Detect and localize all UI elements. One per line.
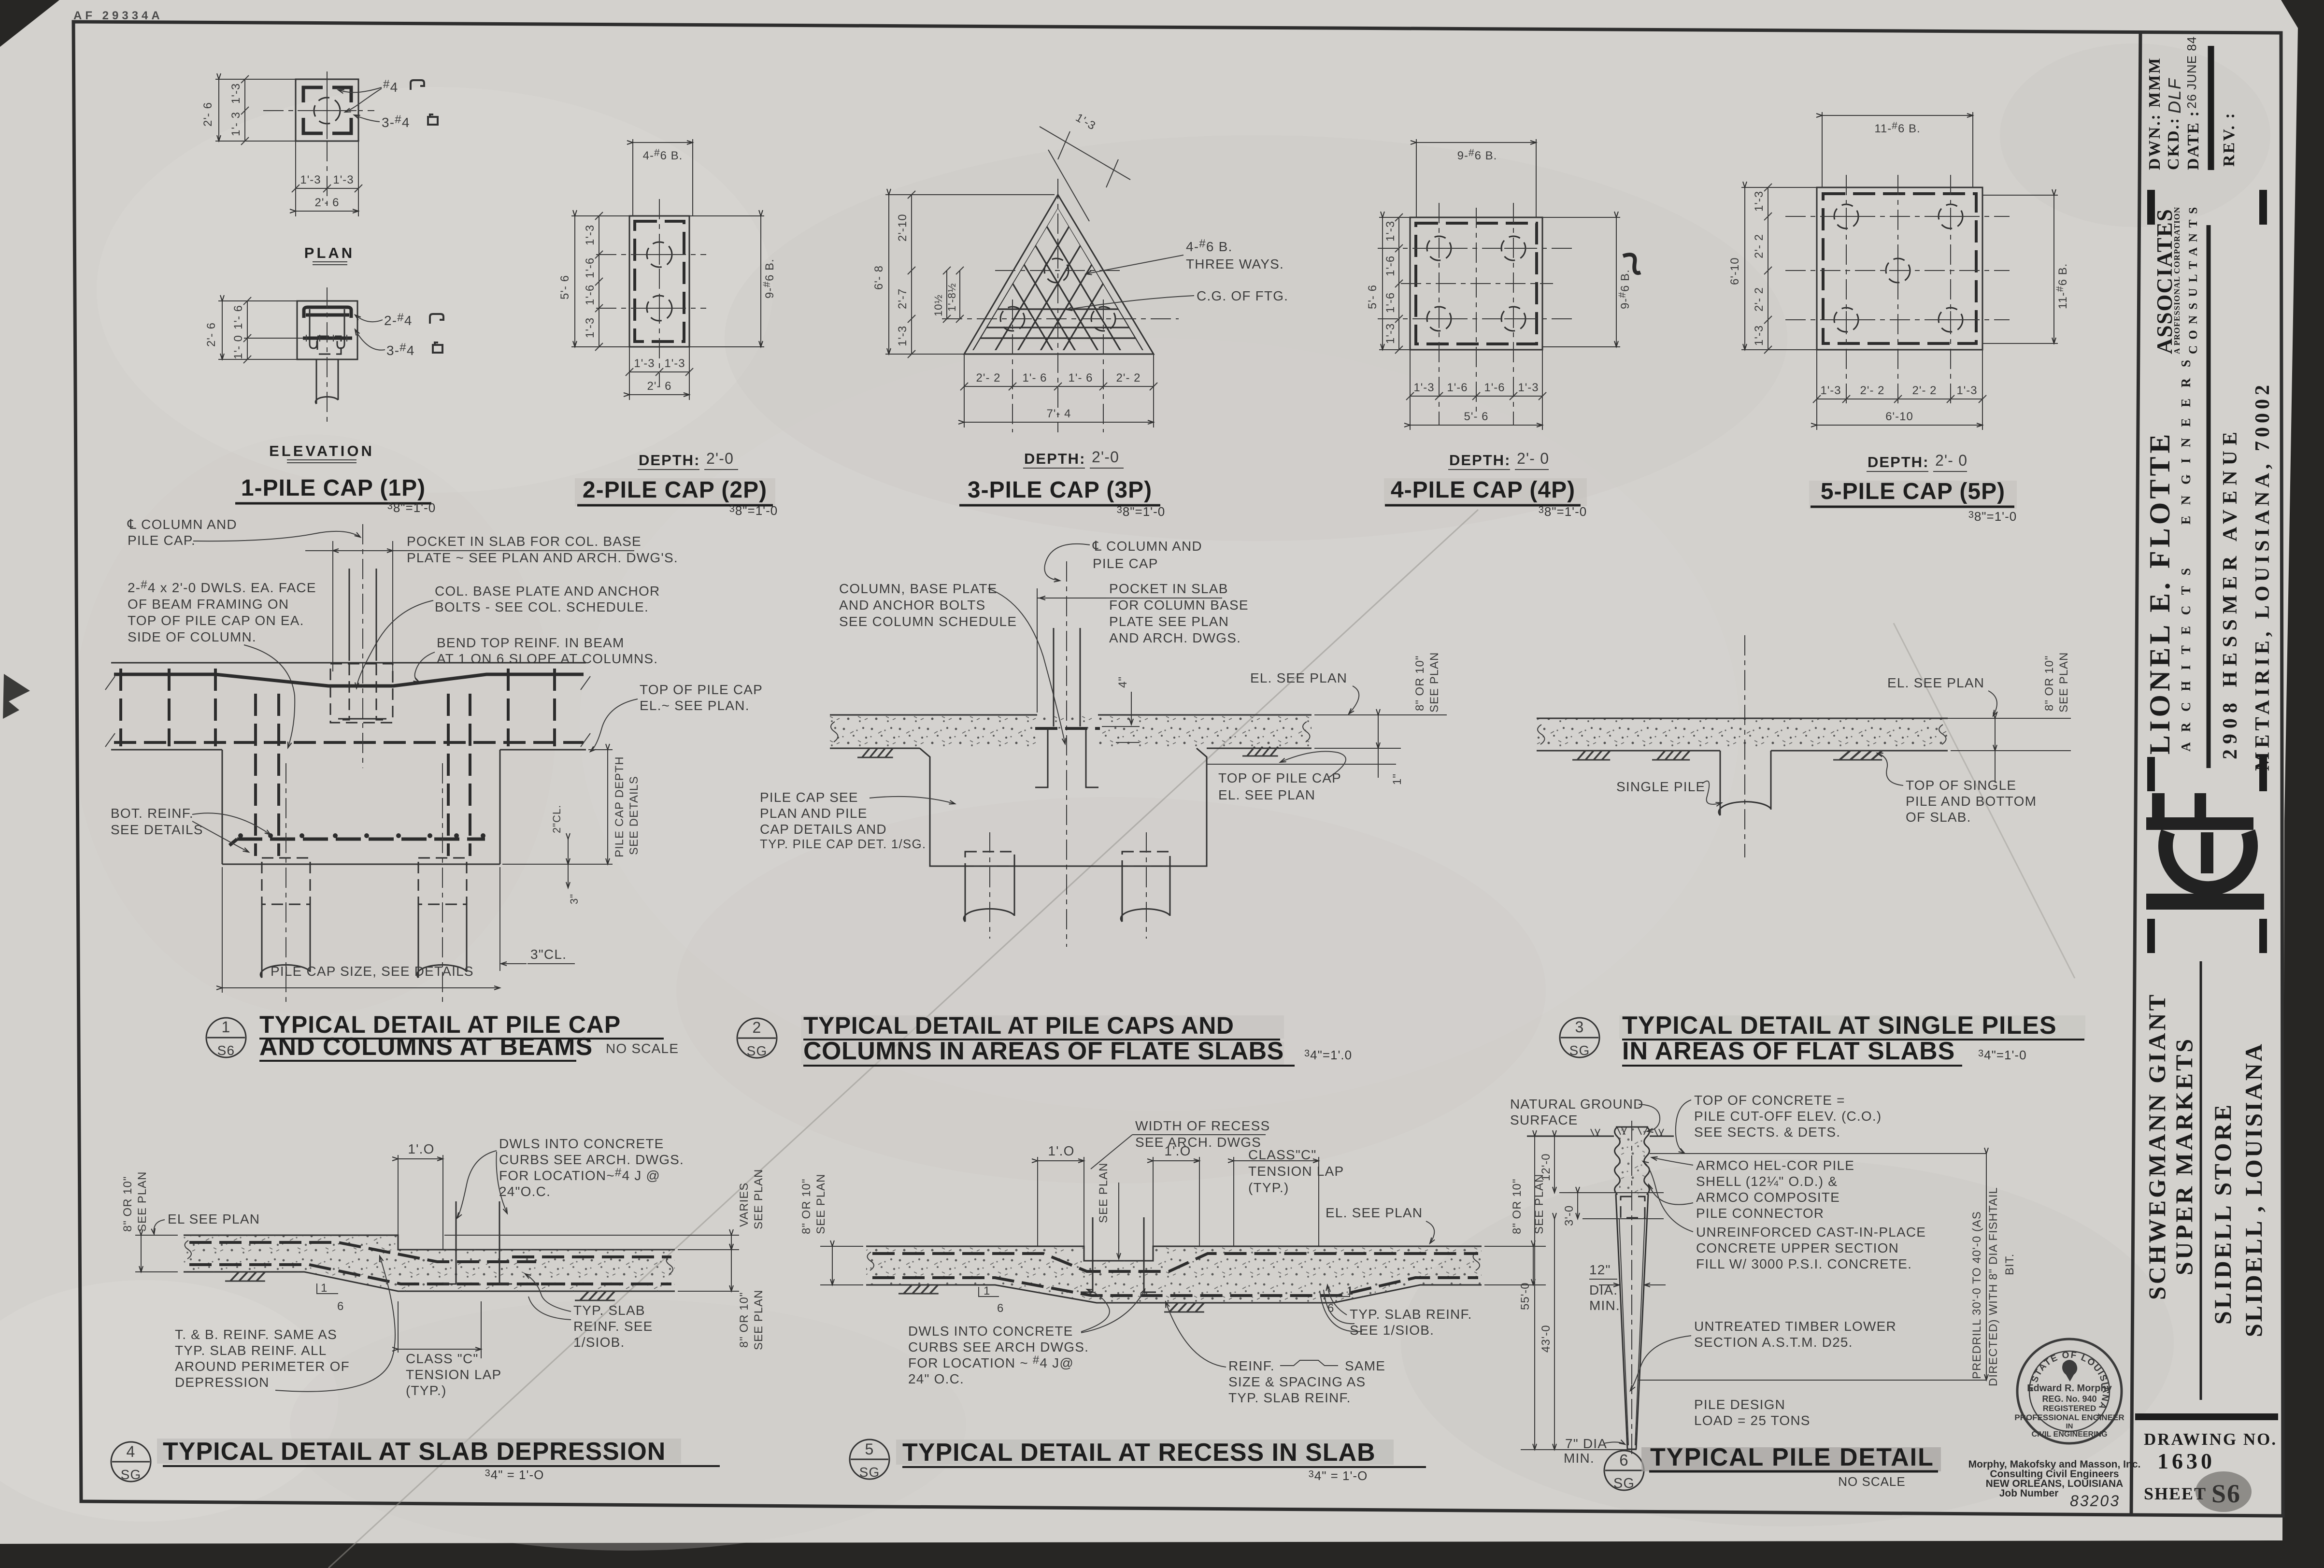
svg-text:2'- 6: 2'- 6 bbox=[205, 322, 218, 347]
svg-text:OF SLAB.: OF SLAB. bbox=[1906, 810, 1971, 825]
svg-text:REINF.: REINF. bbox=[1228, 1358, 1275, 1373]
svg-text:1: 1 bbox=[321, 1282, 328, 1295]
svg-text:1630: 1630 bbox=[2157, 1449, 2215, 1473]
svg-text:8" OR 10": 8" OR 10" bbox=[1413, 656, 1426, 711]
svg-text:AND COLUMNS AT BEAMS: AND COLUMNS AT BEAMS bbox=[259, 1033, 593, 1061]
svg-text:8" OR 10": 8" OR 10" bbox=[800, 1179, 813, 1234]
svg-text:3: 3 bbox=[1575, 1018, 1584, 1036]
svg-text:SUPER MARKETS: SUPER MARKETS bbox=[2170, 1037, 2197, 1275]
svg-text:SG: SG bbox=[747, 1043, 768, 1058]
svg-text:3-PILE CAP (3P): 3-PILE CAP (3P) bbox=[968, 477, 1152, 503]
svg-text:(TYP.): (TYP.) bbox=[406, 1383, 446, 1398]
svg-text:1'-3: 1'-3 bbox=[1413, 381, 1434, 394]
svg-text:2'- 2: 2'- 2 bbox=[1116, 371, 1141, 385]
svg-text:38"=1'-0: 38"=1'-0 bbox=[1968, 509, 2017, 524]
svg-text:8" OR 10": 8" OR 10" bbox=[121, 1176, 134, 1232]
svg-text:1: 1 bbox=[1347, 1284, 1354, 1297]
svg-text:DWN.: MMM: DWN.: MMM bbox=[2146, 57, 2164, 170]
svg-text:1'.O: 1'.O bbox=[408, 1141, 434, 1156]
svg-text:1'- 3: 1'- 3 bbox=[229, 112, 242, 136]
svg-text:TOP OF PILE CAP: TOP OF PILE CAP bbox=[1218, 770, 1341, 785]
svg-text:43'-0: 43'-0 bbox=[1540, 1325, 1553, 1353]
svg-text:38"=1'-0: 38"=1'-0 bbox=[729, 503, 778, 518]
svg-text:9-#6 B.: 9-#6 B. bbox=[1457, 147, 1497, 162]
svg-text:26 JUNE 84: 26 JUNE 84 bbox=[2184, 36, 2199, 109]
svg-text:PLATE SEE PLAN: PLATE SEE PLAN bbox=[1109, 614, 1229, 629]
svg-text:83203: 83203 bbox=[2070, 1492, 2120, 1510]
svg-text:SHELL (12¼" O.D.) &: SHELL (12¼" O.D.) & bbox=[1696, 1174, 1838, 1189]
svg-text:FILL W/ 3000 P.S.I. CONCRETE.: FILL W/ 3000 P.S.I. CONCRETE. bbox=[1696, 1256, 1912, 1271]
svg-text:IN: IN bbox=[2066, 1422, 2073, 1430]
svg-text:DIRECTED) WITH 8" DIA FISHTAI: DIRECTED) WITH 8" DIA FISHTAIL bbox=[1987, 1187, 2000, 1386]
svg-text:6: 6 bbox=[997, 1302, 1004, 1315]
svg-text:6'-10: 6'-10 bbox=[1728, 257, 1741, 285]
svg-text:TYPICAL DETAIL AT PILE CAPS AN: TYPICAL DETAIL AT PILE CAPS AND bbox=[803, 1012, 1234, 1039]
svg-text:1'-3: 1'-3 bbox=[1753, 325, 1766, 346]
svg-text:3'-0: 3'-0 bbox=[1563, 1205, 1576, 1226]
svg-text:TOP OF CONCRETE =: TOP OF CONCRETE = bbox=[1694, 1093, 1845, 1108]
svg-text:AT 1 ON 6 SLOPE AT COLUMNS.: AT 1 ON 6 SLOPE AT COLUMNS. bbox=[437, 651, 658, 666]
svg-text:BOLTS - SEE COL. SCHEDULE.: BOLTS - SEE COL. SCHEDULE. bbox=[435, 599, 649, 614]
svg-text:34"=1'.0: 34"=1'.0 bbox=[1304, 1048, 1352, 1062]
svg-text:EL. SEE PLAN: EL. SEE PLAN bbox=[1326, 1205, 1423, 1220]
svg-text:Job Number: Job Number bbox=[1999, 1488, 2059, 1499]
svg-text:2'- 2: 2'- 2 bbox=[1753, 234, 1766, 258]
svg-text:SEE 1/SIOB.: SEE 1/SIOB. bbox=[1350, 1323, 1434, 1338]
svg-text:BOT. REINF.: BOT. REINF. bbox=[111, 806, 194, 821]
svg-text:SCHWEGMANN GIANT: SCHWEGMANN GIANT bbox=[2143, 992, 2170, 1300]
svg-text:EL. SEE PLAN: EL. SEE PLAN bbox=[1250, 670, 1347, 685]
svg-text:DEPTH:: DEPTH: bbox=[1024, 450, 1085, 467]
svg-text:LIONEL E. FLOTTE: LIONEL E. FLOTTE bbox=[2144, 430, 2176, 755]
svg-text:2'-10: 2'-10 bbox=[896, 214, 909, 242]
svg-text:VARIES: VARIES bbox=[738, 1183, 751, 1227]
svg-text:1'-3: 1'-3 bbox=[1384, 221, 1397, 242]
svg-text:BIT.: BIT. bbox=[2003, 1254, 2016, 1275]
svg-text:EL. SEE PLAN: EL. SEE PLAN bbox=[1218, 787, 1315, 802]
svg-text:PILE CONNECTOR: PILE CONNECTOR bbox=[1696, 1206, 1824, 1221]
svg-text:SINGLE PILE: SINGLE PILE bbox=[1616, 779, 1705, 794]
svg-text:COLUMNS IN AREAS OF FLATE SLAB: COLUMNS IN AREAS OF FLATE SLABS bbox=[803, 1037, 1284, 1065]
svg-text:WIDTH OF RECESS: WIDTH OF RECESS bbox=[1135, 1118, 1270, 1133]
svg-text:NATURAL GROUND: NATURAL GROUND bbox=[1510, 1097, 1644, 1112]
svg-text:SEE DETAILS: SEE DETAILS bbox=[627, 776, 641, 855]
svg-text:POCKET IN SLAB: POCKET IN SLAB bbox=[1109, 581, 1228, 596]
svg-text:1'-6: 1'-6 bbox=[584, 285, 597, 305]
svg-text:SEE PLAN: SEE PLAN bbox=[136, 1171, 149, 1232]
svg-text:2: 2 bbox=[753, 1019, 762, 1036]
svg-text:PLAN: PLAN bbox=[304, 244, 355, 261]
svg-text:2"CL.: 2"CL. bbox=[551, 805, 563, 833]
svg-text:1'-6: 1'-6 bbox=[1447, 381, 1468, 394]
svg-text:PROFESSIONAL ENGINEER: PROFESSIONAL ENGINEER bbox=[2014, 1413, 2124, 1422]
svg-text:1'-6: 1'-6 bbox=[584, 257, 597, 278]
svg-text:MIN.: MIN. bbox=[1564, 1451, 1595, 1466]
svg-text:SLIDELL , LOUISIANA: SLIDELL , LOUISIANA bbox=[2240, 1042, 2267, 1337]
svg-text:DEPTH:: DEPTH: bbox=[639, 452, 700, 469]
svg-text:1'-6: 1'-6 bbox=[1384, 256, 1397, 276]
svg-text:2'- 0: 2'- 0 bbox=[1935, 452, 1968, 469]
svg-text:1'-3: 1'-3 bbox=[1384, 323, 1397, 344]
svg-text:6'- 8: 6'- 8 bbox=[872, 265, 885, 290]
svg-text:7'- 4: 7'- 4 bbox=[1047, 407, 1071, 420]
svg-text:PILE DESIGN: PILE DESIGN bbox=[1694, 1397, 1785, 1412]
svg-text:SEE ARCH. DWGS: SEE ARCH. DWGS bbox=[1135, 1135, 1261, 1150]
svg-text:1'-3: 1'-3 bbox=[1753, 191, 1766, 212]
svg-text:2-#4 x 2'-0 DWLS. EA. FACE: 2-#4 x 2'-0 DWLS. EA. FACE bbox=[128, 578, 316, 595]
svg-text:NO SCALE: NO SCALE bbox=[1838, 1474, 1906, 1489]
svg-text:1'-8½: 1'-8½ bbox=[946, 283, 958, 312]
svg-text:DWLS INTO CONCRETE: DWLS INTO CONCRETE bbox=[908, 1324, 1073, 1339]
svg-text:TYP. SLAB REINF.: TYP. SLAB REINF. bbox=[1350, 1307, 1472, 1322]
svg-text:6: 6 bbox=[337, 1300, 344, 1313]
svg-text:5-PILE CAP (5P): 5-PILE CAP (5P) bbox=[1821, 479, 2005, 504]
svg-text:REG. No. 940: REG. No. 940 bbox=[2042, 1394, 2096, 1404]
svg-text:8" OR 10": 8" OR 10" bbox=[738, 1292, 751, 1348]
svg-text:OF BEAM FRAMING ON: OF BEAM FRAMING ON bbox=[128, 597, 289, 612]
svg-text:TYP. SLAB: TYP. SLAB bbox=[573, 1303, 645, 1318]
svg-text:1'- 6: 1'- 6 bbox=[232, 305, 245, 329]
svg-text:3": 3" bbox=[568, 894, 580, 904]
svg-text:AND ANCHOR BOLTS: AND ANCHOR BOLTS bbox=[839, 598, 985, 613]
svg-text:DEPRESSION: DEPRESSION bbox=[175, 1375, 270, 1390]
svg-text:TOP OF PILE CAP ON EA.: TOP OF PILE CAP ON EA. bbox=[128, 613, 304, 628]
svg-text:SG: SG bbox=[859, 1465, 880, 1480]
svg-text:CLASS "C": CLASS "C" bbox=[406, 1351, 479, 1366]
svg-text:38"=1'-0: 38"=1'-0 bbox=[1539, 504, 1587, 519]
svg-text:1'-3: 1'-3 bbox=[300, 173, 321, 186]
svg-text:2'- 6: 2'- 6 bbox=[201, 102, 214, 127]
svg-text:TYP. PILE CAP DET. 1/SG.: TYP. PILE CAP DET. 1/SG. bbox=[760, 837, 926, 851]
svg-text:ELEVATION: ELEVATION bbox=[269, 442, 374, 459]
svg-text:5'- 6: 5'- 6 bbox=[1464, 410, 1489, 423]
svg-text:ARMCO COMPOSITE: ARMCO COMPOSITE bbox=[1696, 1190, 1840, 1205]
svg-text:5'- 6: 5'- 6 bbox=[558, 275, 571, 299]
svg-text:EL SEE PLAN: EL SEE PLAN bbox=[168, 1212, 260, 1226]
svg-text:Edward R. Morphy: Edward R. Morphy bbox=[2027, 1383, 2112, 1394]
svg-text:SEE PLAN: SEE PLAN bbox=[1428, 652, 1441, 713]
svg-text:IN AREAS OF FLAT SLABS: IN AREAS OF FLAT SLABS bbox=[1622, 1037, 1955, 1065]
svg-text:SIZE & SPACING AS: SIZE & SPACING AS bbox=[1228, 1374, 1366, 1389]
svg-text:(TYP.): (TYP.) bbox=[1248, 1180, 1289, 1195]
svg-text:1'-3: 1'-3 bbox=[896, 326, 909, 346]
svg-text:3"CL.: 3"CL. bbox=[530, 947, 567, 962]
svg-text:7" DIA: 7" DIA bbox=[1565, 1436, 1607, 1451]
svg-text:34" = 1'-O: 34" = 1'-O bbox=[485, 1468, 544, 1482]
svg-text:1'-3: 1'-3 bbox=[229, 83, 242, 104]
svg-text:C O N S U L T A N T S: C O N S U L T A N T S bbox=[2187, 206, 2200, 354]
svg-text:LOAD = 25 TONS: LOAD = 25 TONS bbox=[1694, 1413, 1811, 1428]
svg-text:CONCRETE UPPER SECTION: CONCRETE UPPER SECTION bbox=[1696, 1240, 1899, 1255]
svg-text:SG: SG bbox=[121, 1467, 142, 1482]
svg-text:2'- 6: 2'- 6 bbox=[647, 380, 672, 393]
svg-text:TYPICAL DETAIL AT RECESS IN SL: TYPICAL DETAIL AT RECESS IN SLAB bbox=[902, 1439, 1376, 1467]
svg-text:SEE SECTS. & DETS.: SEE SECTS. & DETS. bbox=[1694, 1125, 1840, 1140]
svg-text:TYPICAL PILE DETAIL: TYPICAL PILE DETAIL bbox=[1650, 1443, 1934, 1471]
svg-text:COLUMN, BASE PLATE: COLUMN, BASE PLATE bbox=[839, 581, 998, 596]
svg-text:SEE PLAN: SEE PLAN bbox=[752, 1169, 765, 1229]
svg-text:UNREINFORCED CAST-IN-PLACE: UNREINFORCED CAST-IN-PLACE bbox=[1696, 1225, 1926, 1240]
svg-text:TOP OF PILE CAP: TOP OF PILE CAP bbox=[640, 682, 763, 697]
svg-text:BEND TOP REINF. IN BEAM: BEND TOP REINF. IN BEAM bbox=[437, 635, 625, 650]
svg-text:AND ARCH. DWGS.: AND ARCH. DWGS. bbox=[1109, 630, 1241, 645]
svg-text:SECTION A.S.T.M. D25.: SECTION A.S.T.M. D25. bbox=[1694, 1335, 1853, 1350]
svg-text:DEPTH:: DEPTH: bbox=[1449, 452, 1511, 469]
svg-text:REINF. SEE: REINF. SEE bbox=[573, 1319, 653, 1334]
svg-text:1: 1 bbox=[222, 1018, 231, 1036]
svg-text:12": 12" bbox=[1589, 1262, 1611, 1277]
svg-text:1'- 0: 1'- 0 bbox=[232, 335, 245, 359]
svg-text:1'-3: 1'-3 bbox=[1956, 384, 1977, 397]
svg-text:1'-3: 1'-3 bbox=[1820, 384, 1841, 397]
svg-text:CLASS"C": CLASS"C" bbox=[1248, 1147, 1317, 1162]
svg-text:2'- 6: 2'- 6 bbox=[315, 196, 340, 209]
svg-text:24" O.C.: 24" O.C. bbox=[908, 1371, 964, 1386]
svg-text:SEE PLAN: SEE PLAN bbox=[752, 1290, 765, 1350]
svg-text:9-#6 B.: 9-#6 B. bbox=[1617, 269, 1632, 309]
svg-text:4: 4 bbox=[127, 1443, 136, 1460]
svg-text:5'- 6: 5'- 6 bbox=[1366, 285, 1379, 309]
svg-text:4-#6 B.: 4-#6 B. bbox=[643, 147, 683, 162]
svg-text:2'-0: 2'-0 bbox=[1092, 448, 1119, 466]
svg-text:℄ COLUMN AND: ℄ COLUMN AND bbox=[127, 517, 237, 532]
svg-text:EL. SEE PLAN: EL. SEE PLAN bbox=[1887, 675, 1984, 690]
svg-text:ARMCO HEL-COR PILE: ARMCO HEL-COR PILE bbox=[1696, 1158, 1854, 1173]
svg-text:FOR LOCATION~#4 J @: FOR LOCATION~#4 J @ bbox=[499, 1166, 660, 1183]
svg-text:UNTREATED TIMBER LOWER: UNTREATED TIMBER LOWER bbox=[1694, 1319, 1896, 1334]
svg-text:55'-0: 55'-0 bbox=[1519, 1282, 1532, 1310]
svg-text:12'-0: 12'-0 bbox=[1540, 1153, 1553, 1181]
svg-text:POCKET IN SLAB FOR COL. BASE: POCKET IN SLAB FOR COL. BASE bbox=[407, 534, 642, 549]
svg-text:DWLS INTO CONCRETE: DWLS INTO CONCRETE bbox=[499, 1136, 664, 1151]
svg-text:REV. :: REV. : bbox=[2220, 112, 2238, 167]
svg-text:2'- 2: 2'- 2 bbox=[1860, 384, 1885, 397]
svg-text:METAIRIE, LOUISIANA, 70002: METAIRIE, LOUISIANA, 70002 bbox=[2252, 381, 2274, 771]
svg-text:8" OR 10": 8" OR 10" bbox=[2043, 656, 2056, 711]
svg-text:PREDRILL 30'-0 TO 40'-0 (AS: PREDRILL 30'-0 TO 40'-0 (AS bbox=[1970, 1211, 1983, 1379]
svg-text:PILE CAP.: PILE CAP. bbox=[128, 533, 196, 548]
svg-text:2'- 2: 2'- 2 bbox=[976, 371, 1001, 385]
svg-text:2'- 2: 2'- 2 bbox=[1912, 384, 1937, 397]
svg-text:38"=1'-0: 38"=1'-0 bbox=[1117, 504, 1166, 519]
svg-text:1: 1 bbox=[984, 1284, 990, 1297]
svg-text:TYPICAL DETAIL AT SLAB DEPRESS: TYPICAL DETAIL AT SLAB DEPRESSION bbox=[163, 1438, 666, 1466]
svg-text:4-PILE CAP (4P): 4-PILE CAP (4P) bbox=[1391, 477, 1575, 503]
svg-text:1'-3: 1'-3 bbox=[584, 225, 597, 245]
svg-text:4-#6 B.: 4-#6 B. bbox=[1186, 237, 1232, 254]
svg-text:11-#6 B.: 11-#6 B. bbox=[1874, 120, 1920, 135]
svg-text:1'-6: 1'-6 bbox=[1384, 292, 1397, 313]
svg-text:1'-3: 1'-3 bbox=[664, 357, 685, 370]
svg-text:1'.O: 1'.O bbox=[1164, 1143, 1191, 1158]
svg-text:TYPICAL DETAIL AT SINGLE PILES: TYPICAL DETAIL AT SINGLE PILES bbox=[1622, 1012, 2057, 1040]
svg-text:1": 1" bbox=[1391, 773, 1404, 785]
svg-text:24"O.C.: 24"O.C. bbox=[499, 1184, 551, 1199]
svg-text:1'-3: 1'-3 bbox=[333, 173, 354, 186]
svg-text:11-#6 B.: 11-#6 B. bbox=[2054, 263, 2069, 309]
svg-text:S6: S6 bbox=[217, 1043, 235, 1058]
svg-text:DEPTH:: DEPTH: bbox=[1868, 454, 1929, 470]
svg-text:E N G I N E E R S: E N G I N E E R S bbox=[2179, 356, 2193, 525]
svg-text:COL. BASE PLATE AND ANCHOR: COL. BASE PLATE AND ANCHOR bbox=[435, 584, 660, 599]
svg-text:PILE CAP SIZE, SEE DETAILS: PILE CAP SIZE, SEE DETAILS bbox=[271, 964, 474, 979]
svg-text:MIN.: MIN. bbox=[1589, 1298, 1620, 1313]
svg-text:PLATE ~ SEE PLAN AND ARCH. DWG: PLATE ~ SEE PLAN AND ARCH. DWG'S. bbox=[407, 550, 678, 565]
svg-text:6'-10: 6'-10 bbox=[1885, 410, 1913, 423]
svg-text:REGISTERED: REGISTERED bbox=[2043, 1404, 2096, 1413]
svg-text:TYP. SLAB REINF. ALL: TYP. SLAB REINF. ALL bbox=[175, 1343, 327, 1358]
svg-text:9-#6 B.: 9-#6 B. bbox=[761, 258, 776, 299]
svg-text:SIDE OF COLUMN.: SIDE OF COLUMN. bbox=[128, 629, 257, 644]
svg-text:PILE AND BOTTOM: PILE AND BOTTOM bbox=[1906, 794, 2037, 809]
svg-text:6: 6 bbox=[1619, 1451, 1629, 1469]
svg-text:NO SCALE: NO SCALE bbox=[606, 1041, 679, 1056]
svg-text:2'- 0: 2'- 0 bbox=[1517, 450, 1549, 467]
svg-text:PILE CAP: PILE CAP bbox=[1093, 556, 1158, 571]
svg-text:DLF: DLF bbox=[2165, 78, 2184, 114]
svg-text:PILE CAP SEE: PILE CAP SEE bbox=[760, 790, 858, 805]
svg-text:TYP. SLAB REINF.: TYP. SLAB REINF. bbox=[1228, 1390, 1351, 1405]
svg-text:FOR COLUMN BASE: FOR COLUMN BASE bbox=[1109, 598, 1249, 613]
svg-text:SG: SG bbox=[1613, 1476, 1635, 1491]
svg-text:℄ COLUMN AND: ℄ COLUMN AND bbox=[1092, 539, 1202, 554]
svg-text:1/SIOB.: 1/SIOB. bbox=[573, 1335, 625, 1350]
svg-text:PILE CUT-OFF ELEV. (C.O.): PILE CUT-OFF ELEV. (C.O.) bbox=[1694, 1109, 1882, 1124]
svg-text:1'-3: 1'-3 bbox=[584, 317, 597, 338]
svg-text:DRAWING NO.: DRAWING NO. bbox=[2144, 1430, 2277, 1449]
svg-text:EL.~ SEE PLAN.: EL.~ SEE PLAN. bbox=[640, 698, 750, 713]
svg-text:A R C H I T E C T S: A R C H I T E C T S bbox=[2179, 564, 2193, 752]
svg-text:CIVIL ENGINEERING: CIVIL ENGINEERING bbox=[2031, 1430, 2107, 1439]
svg-text:SEE COLUMN SCHEDULE: SEE COLUMN SCHEDULE bbox=[839, 614, 1017, 629]
svg-text:AROUND PERIMETER OF: AROUND PERIMETER OF bbox=[175, 1359, 350, 1374]
svg-text:10½: 10½ bbox=[932, 294, 944, 316]
svg-text:34"=1'-0: 34"=1'-0 bbox=[1978, 1048, 2027, 1062]
svg-text:1'- 6: 1'- 6 bbox=[1069, 371, 1093, 385]
svg-text:SEE DETAILS: SEE DETAILS bbox=[111, 822, 203, 837]
svg-text:PLAN AND PILE: PLAN AND PILE bbox=[760, 806, 868, 821]
svg-text:2908 HESSMER AVENUE: 2908 HESSMER AVENUE bbox=[2219, 427, 2241, 759]
svg-text:SLIDELL STORE: SLIDELL STORE bbox=[2209, 1102, 2236, 1325]
svg-text:38"=1'-0: 38"=1'-0 bbox=[387, 500, 436, 515]
svg-text:THREE WAYS.: THREE WAYS. bbox=[1186, 257, 1284, 271]
svg-text:SURFACE: SURFACE bbox=[1510, 1112, 1578, 1127]
svg-text:PILE CAP DEPTH: PILE CAP DEPTH bbox=[613, 756, 626, 857]
svg-text:1-PILE CAP (1P): 1-PILE CAP (1P) bbox=[241, 475, 426, 501]
svg-text:4": 4" bbox=[1116, 676, 1129, 688]
svg-text:5: 5 bbox=[865, 1440, 874, 1458]
svg-text:2'-0: 2'-0 bbox=[706, 450, 734, 467]
svg-text:TOP OF SINGLE: TOP OF SINGLE bbox=[1906, 778, 2016, 793]
svg-text:1'-6: 1'-6 bbox=[1484, 381, 1505, 394]
svg-text:T. & B. REINF. SAME AS: T. & B. REINF. SAME AS bbox=[175, 1327, 337, 1342]
svg-text:1'- 6: 1'- 6 bbox=[1023, 371, 1047, 385]
svg-text:34" = 1'-O: 34" = 1'-O bbox=[1309, 1468, 1368, 1483]
svg-text:SEE PLAN: SEE PLAN bbox=[814, 1174, 827, 1234]
svg-text:SEE PLAN: SEE PLAN bbox=[2057, 652, 2070, 713]
svg-text:2'-7: 2'-7 bbox=[896, 288, 909, 309]
svg-text:1'-3: 1'-3 bbox=[634, 357, 655, 370]
svg-text:TENSION LAP: TENSION LAP bbox=[1248, 1164, 1344, 1179]
svg-text:CURBS SEE ARCH DWGS.: CURBS SEE ARCH DWGS. bbox=[908, 1340, 1089, 1354]
svg-text:C.G. OF FTG.: C.G. OF FTG. bbox=[1197, 288, 1288, 303]
svg-text:CAP DETAILS AND: CAP DETAILS AND bbox=[760, 822, 887, 837]
svg-text:SG: SG bbox=[1569, 1043, 1590, 1058]
svg-text:SAME: SAME bbox=[1345, 1358, 1385, 1373]
svg-text:2'- 2: 2'- 2 bbox=[1753, 287, 1766, 312]
svg-text:FOR LOCATION ~ #4 J@: FOR LOCATION ~ #4 J@ bbox=[908, 1354, 1074, 1370]
svg-text:8" OR 10": 8" OR 10" bbox=[1511, 1179, 1524, 1234]
svg-text:TENSION LAP: TENSION LAP bbox=[406, 1367, 501, 1382]
svg-text:2-PILE CAP (2P): 2-PILE CAP (2P) bbox=[583, 477, 767, 503]
svg-text:1'-3: 1'-3 bbox=[1518, 381, 1539, 394]
svg-text:1'.O: 1'.O bbox=[1048, 1143, 1074, 1158]
svg-text:A PROFESSIONAL CORPORATION: A PROFESSIONAL CORPORATION bbox=[2172, 207, 2181, 354]
svg-text:SEE PLAN: SEE PLAN bbox=[1097, 1163, 1110, 1223]
svg-text:CKD.:: CKD.: bbox=[2165, 117, 2182, 170]
svg-text:DATE :: DATE : bbox=[2184, 110, 2202, 170]
svg-text:CURBS SEE ARCH. DWGS.: CURBS SEE ARCH. DWGS. bbox=[499, 1152, 684, 1167]
